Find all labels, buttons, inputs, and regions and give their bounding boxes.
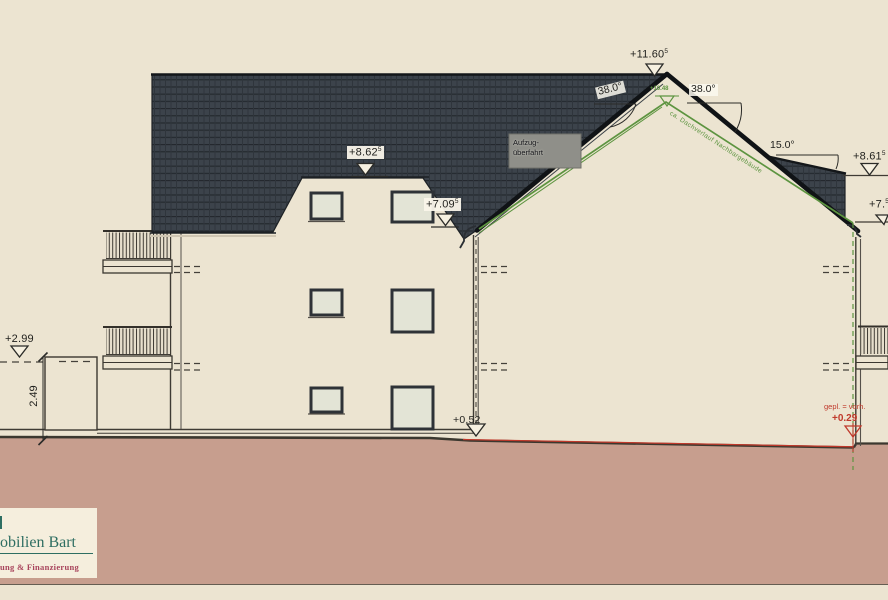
ridge-level-sup: 5: [664, 48, 668, 55]
elevation-drawing: [0, 0, 888, 600]
planned-ground-level-label: +0.29: [832, 413, 857, 424]
logo-name: obilien Bart: [0, 534, 93, 554]
gable-left-wall: [460, 226, 478, 430]
upper-roof-level-value: +8.62: [349, 147, 378, 159]
windows: [308, 192, 433, 429]
terrain-building-level-label: +0.52: [453, 415, 481, 427]
right-roof-angle-label: 38.0°: [689, 84, 718, 96]
right-edge-marker: [876, 215, 888, 225]
upper-roof-level-label: +8.625: [347, 146, 384, 159]
neighbor-eaves-sup: 5: [882, 150, 886, 157]
upper-roof-level-sup: 5: [378, 146, 382, 153]
window-door: [392, 387, 433, 429]
elevator-overrun-label: Aufzug- überfahrt: [513, 138, 543, 158]
balcony-right-railing: [860, 328, 888, 354]
elevator-label-line1: Aufzug-: [513, 138, 543, 148]
logo-mark-icon: [0, 516, 2, 529]
elevation-sheet: +11.605 38.0° 38.0° 15.0° +10.48 ca. Dac…: [0, 0, 888, 600]
window: [311, 290, 342, 315]
neighbor-eaves-marker: [861, 164, 878, 176]
elevator-label-line2: überfahrt: [513, 148, 543, 158]
eaves-level-label: +7.095: [424, 198, 461, 211]
retaining-wall: [0, 357, 97, 430]
terrain-left-level-label: +2.99: [5, 333, 34, 345]
logo-tagline: ung & Finanzierung: [0, 562, 79, 572]
neighbor-eaves-level-label: +8.615: [853, 150, 886, 163]
ridge-level-label: +11.605: [630, 48, 668, 61]
right-edge-level-label: +7.5: [869, 198, 888, 211]
company-logo: obilien Bart ung & Finanzierung: [0, 508, 97, 578]
window-door: [392, 290, 433, 332]
balcony-lower: [103, 327, 172, 369]
ground: [0, 437, 888, 585]
neighbor-ridge-level-label: +10.48: [650, 86, 669, 93]
terrain-left-marker: [11, 346, 28, 357]
window: [311, 193, 342, 219]
balcony-upper: [103, 231, 172, 273]
planned-existing-note: gepl. = vorh.: [824, 403, 865, 411]
ridge-level-value: +11.60: [630, 49, 664, 61]
earth-fill: [0, 437, 888, 584]
eaves-level-value: +7.09: [426, 199, 455, 211]
window: [311, 388, 342, 412]
low-roof-angle-label: 15.0°: [770, 140, 795, 152]
right-edge-value: +7.: [869, 199, 885, 211]
wall-height-dimension: 2.49: [28, 376, 40, 416]
floor-level-ticks: [174, 267, 852, 371]
neighbor-eaves-value: +8.61: [853, 151, 882, 163]
eaves-level-sup: 5: [455, 198, 459, 205]
